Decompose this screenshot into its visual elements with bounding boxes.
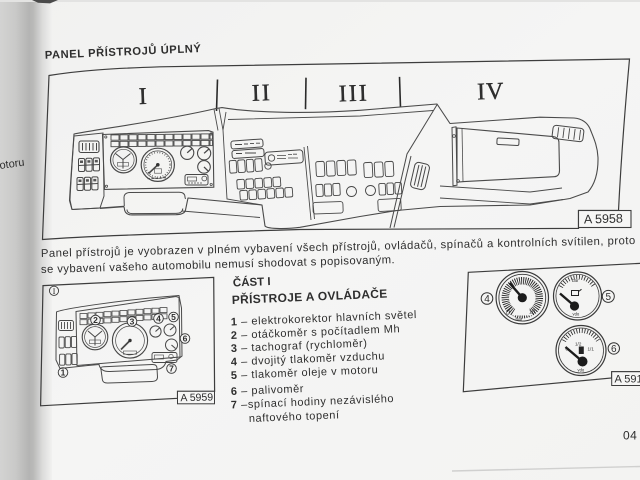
svg-text:5: 5 (171, 312, 176, 322)
svg-text:I: I (138, 84, 147, 110)
svg-text:vdo: vdo (578, 368, 585, 373)
svg-text:04: 04 (623, 429, 637, 443)
svg-text:1: 1 (61, 368, 66, 378)
svg-text:7: 7 (169, 364, 174, 374)
svg-text:4: 4 (156, 314, 161, 324)
svg-text:6: 6 (611, 344, 617, 355)
svg-text:5: 5 (606, 292, 612, 303)
svg-text:IV: IV (477, 79, 505, 106)
svg-text:U: U (506, 311, 510, 317)
svg-text:bar: bar (572, 278, 579, 283)
svg-text:III: III (338, 80, 369, 107)
svg-text:I: I (53, 286, 56, 296)
svg-text:3: 3 (130, 317, 135, 327)
svg-text:bar: bar (516, 317, 523, 323)
svg-text:6: 6 (183, 334, 188, 344)
svg-text:A 5959: A 5959 (180, 391, 213, 404)
svg-text:A 591: A 591 (615, 374, 640, 386)
svg-text:1/2: 1/2 (575, 342, 582, 347)
svg-text:0: 0 (566, 347, 569, 352)
svg-text:2: 2 (93, 315, 98, 325)
svg-text:vdo: vdo (573, 312, 580, 317)
svg-text:1/1: 1/1 (588, 347, 595, 352)
svg-text:10: 10 (529, 310, 535, 316)
svg-text:II: II (251, 80, 272, 107)
svg-text:ČÁST I: ČÁST I (233, 275, 271, 289)
svg-text:A 5958: A 5958 (584, 211, 623, 226)
svg-text:4: 4 (484, 294, 490, 305)
